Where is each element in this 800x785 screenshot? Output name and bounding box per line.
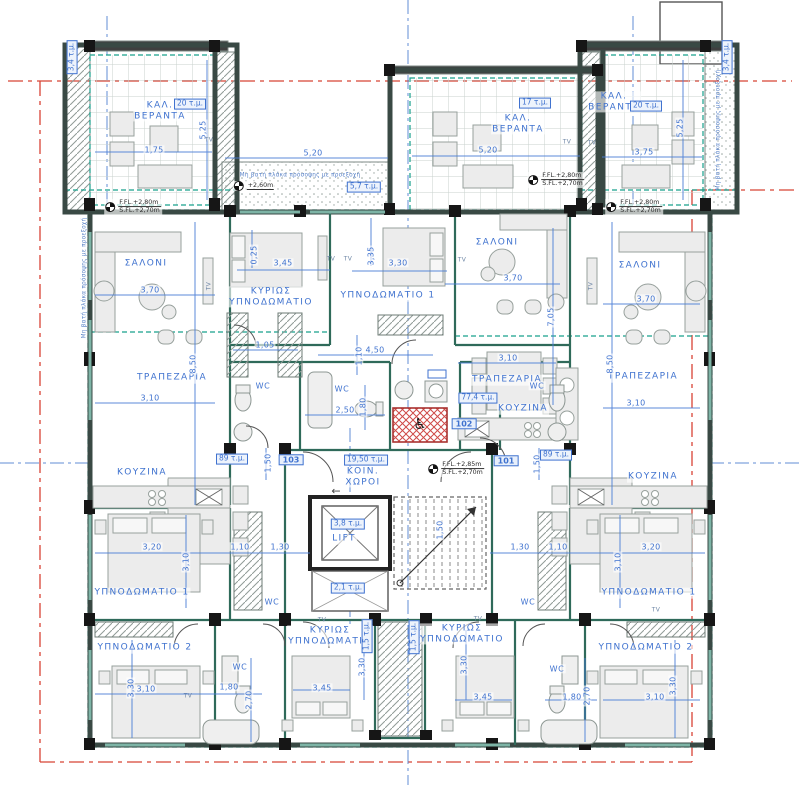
accessible-wc-platform <box>393 408 447 442</box>
floor-plan-drawing <box>0 0 800 785</box>
lift-and-stairs <box>310 497 486 611</box>
left-unit-furniture <box>93 232 248 592</box>
floor-plan-canvas: ΣΑΛΟΝΙΤΡΑΠΕΖΑΡΙΑΚΟΥΖΙΝΑΥΠΝΟΔΩΜΑΤΙΟ 1ΥΠΝΟ… <box>0 0 800 785</box>
